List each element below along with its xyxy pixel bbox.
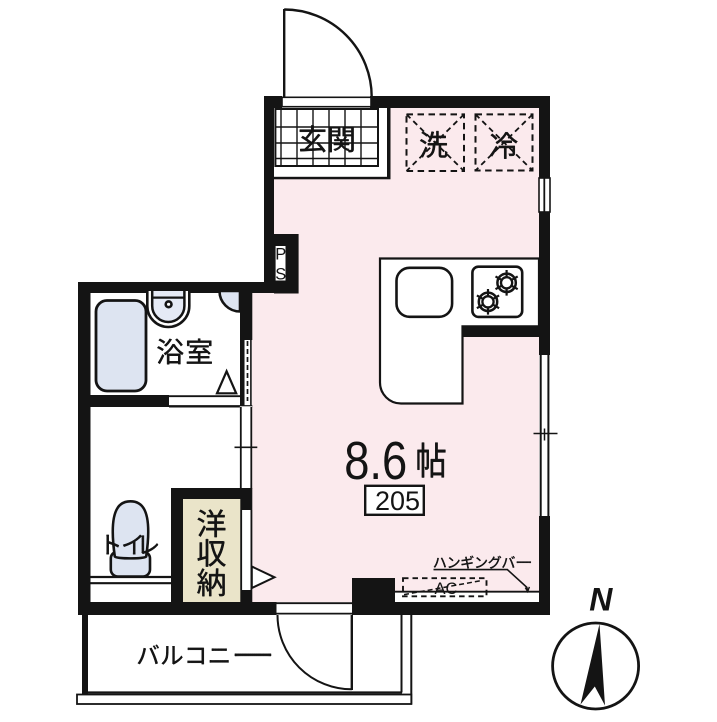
svg-text:N: N [589,582,613,618]
svg-text:AC: AC [435,580,458,598]
svg-text:P: P [275,246,286,264]
svg-text:205: 205 [375,486,420,516]
svg-text:8.6: 8.6 [344,430,407,491]
svg-text:S: S [275,266,286,284]
